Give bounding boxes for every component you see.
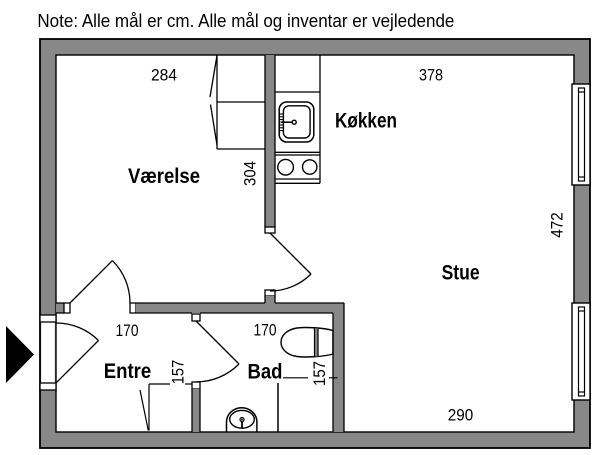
svg-text:157: 157	[310, 361, 329, 386]
svg-text:378: 378	[419, 66, 443, 85]
svg-text:Køkken: Køkken	[335, 109, 397, 132]
svg-text:Note: Alle mål er cm. Alle mål: Note: Alle mål er cm. Alle mål og invent…	[37, 11, 454, 31]
svg-text:472: 472	[548, 212, 567, 238]
svg-text:284: 284	[151, 66, 177, 85]
svg-text:Stue: Stue	[442, 261, 480, 284]
svg-text:290: 290	[448, 406, 474, 425]
svg-text:Entre: Entre	[104, 360, 152, 383]
svg-text:157: 157	[169, 360, 188, 385]
svg-text:Værelse: Værelse	[128, 165, 200, 188]
svg-text:304: 304	[241, 161, 260, 186]
svg-text:170: 170	[116, 321, 139, 340]
svg-text:170: 170	[254, 321, 277, 340]
svg-text:Bad: Bad	[248, 360, 283, 383]
